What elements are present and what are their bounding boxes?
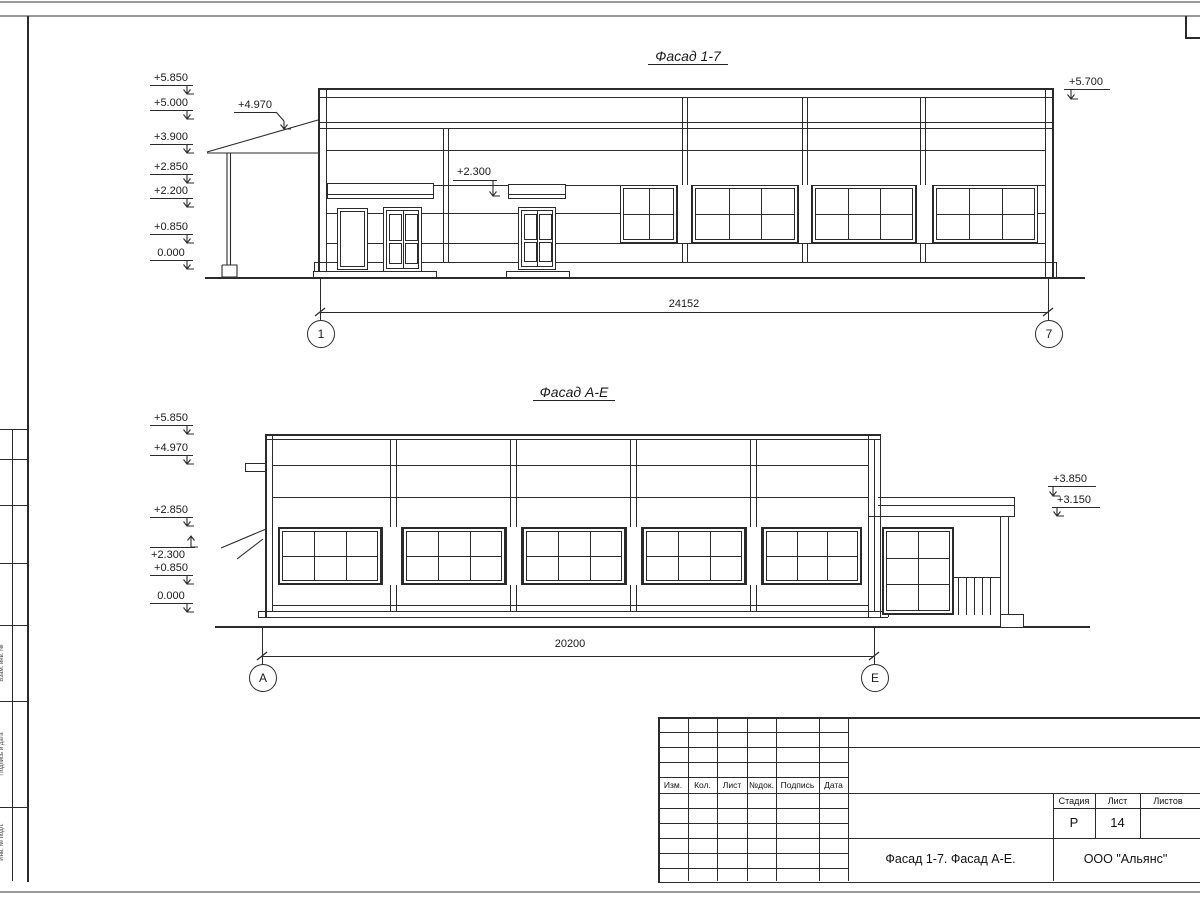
axis-bubble-1: 1 [307, 320, 335, 348]
stage-value: Р [1053, 810, 1095, 834]
elevation-mark: +5.850 [146, 412, 196, 424]
axis-label: Е [871, 671, 879, 685]
axis-label: 1 [318, 327, 325, 341]
axis-bubble-7: 7 [1035, 320, 1063, 348]
facade-1-dimension-label: 24152 [654, 298, 714, 310]
elevation-mark: 0.000 [146, 247, 196, 259]
elevation-mark: +2.300 [144, 549, 192, 561]
revision-header-kol: Кол. [688, 778, 717, 792]
elevation-mark: +5.000 [146, 97, 196, 109]
elevation-mark: +4.970 [230, 99, 280, 111]
elevation-mark: +0.850 [146, 221, 196, 233]
elevation-mark: +4.970 [146, 442, 196, 454]
facade-2-title: Фасад А-Е [533, 386, 615, 401]
sheet-label: Лист [1095, 794, 1140, 807]
sheets-label: Листов [1140, 794, 1196, 807]
axis-label: 7 [1046, 327, 1053, 341]
facade-2-dimension-label: 20200 [540, 638, 600, 650]
revision-header-ndok: №док. [747, 778, 776, 792]
elevation-mark: +5.700 [1060, 76, 1112, 88]
stage-label: Стадия [1053, 794, 1095, 807]
facade-1-title: Фасад 1-7 [648, 50, 728, 65]
elevation-mark: +3.900 [146, 131, 196, 143]
elevation-mark: +5.850 [146, 72, 196, 84]
side-stamp-label-2: Подпись и дата [0, 724, 9, 784]
axis-bubble-e: Е [861, 664, 889, 692]
document-title: Фасад 1-7. Фасад А-Е. [848, 850, 1053, 868]
drawing-sheet: Фасад 1-7 Фасад А-Е 24152 20200 1 7 А Е … [0, 0, 1200, 900]
elevation-mark: +2.200 [146, 185, 196, 197]
elevation-mark: +2.850 [146, 504, 196, 516]
elevation-mark: 0.000 [146, 590, 196, 602]
revision-header-list: Лист [717, 778, 747, 792]
axis-bubble-a: А [249, 664, 277, 692]
elevation-mark: +0.850 [146, 562, 196, 574]
text-layer: Фасад 1-7 Фасад А-Е 24152 20200 1 7 А Е … [0, 0, 1200, 900]
elevation-mark: +2.850 [146, 161, 196, 173]
elevation-mark: +3.150 [1048, 494, 1100, 506]
side-stamp-label-3: Инв. № подл. [0, 812, 9, 872]
company-name: ООО "Альянс" [1053, 850, 1198, 868]
elevation-mark: +3.850 [1044, 473, 1096, 485]
side-stamp-label-1: Взам. инв. № [0, 633, 9, 693]
revision-header-izm: Изм. [658, 778, 688, 792]
axis-label: А [259, 671, 267, 685]
revision-header-podpis: Подпись [776, 778, 819, 792]
revision-header-data: Дата [819, 778, 848, 792]
elevation-mark: +2.300 [449, 166, 499, 178]
sheet-value: 14 [1095, 810, 1140, 834]
